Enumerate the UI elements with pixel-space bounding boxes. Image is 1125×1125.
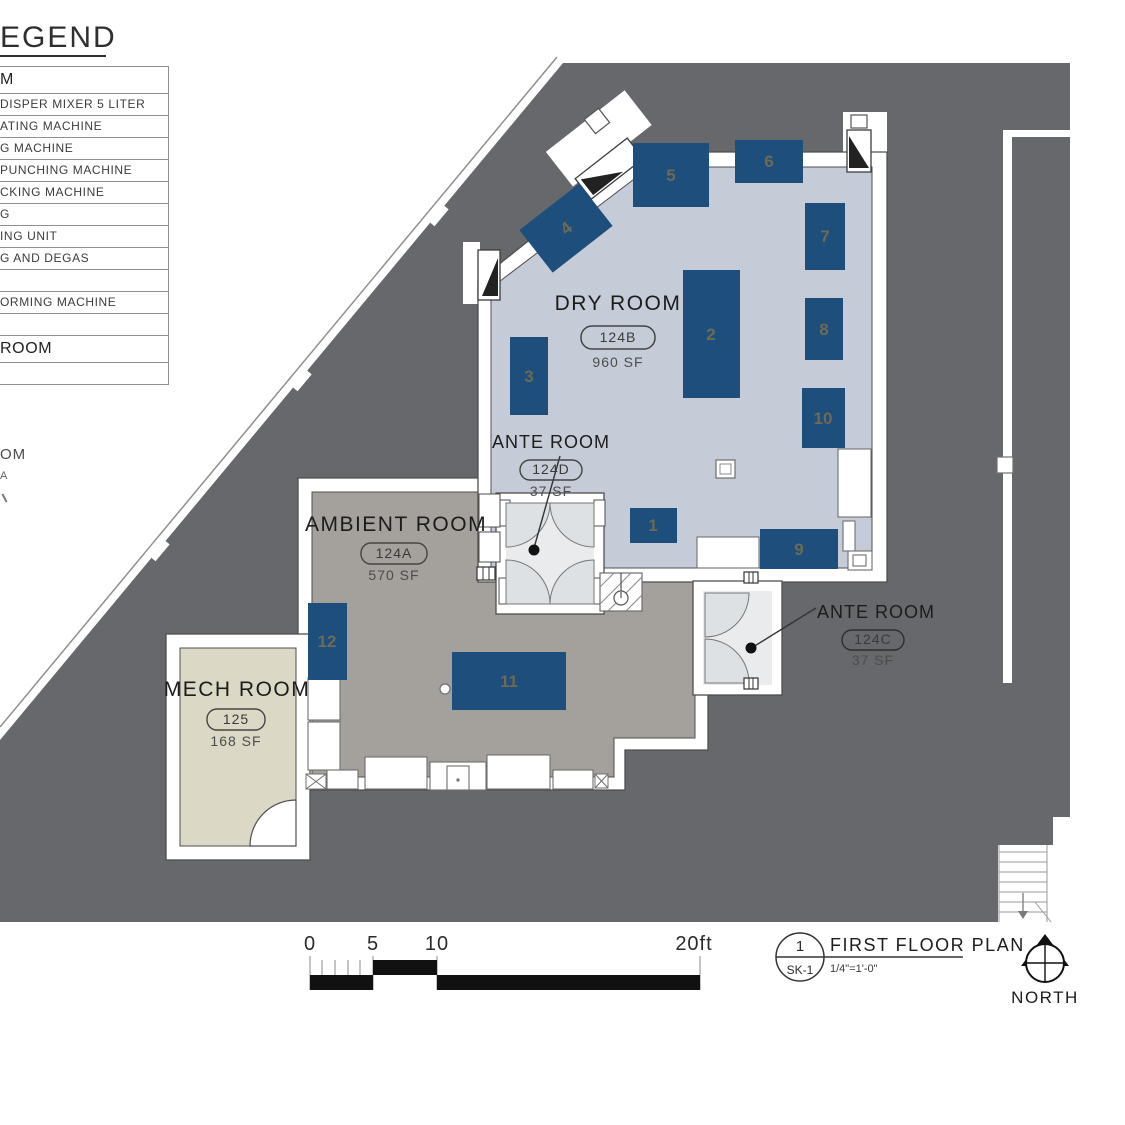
cut-label-fragment: OM [0,446,26,463]
louver-top-right [847,115,871,172]
legend-table: M DISPER MIXER 5 LITER ATING MACHINE G M… [0,66,169,385]
equipment-number: 5 [666,166,675,185]
legend: EGEND M DISPER MIXER 5 LITER ATING MACHI… [0,22,170,385]
room-tag: 124D [532,461,569,477]
equipment-number: 9 [794,540,803,559]
room-tag: 124A [376,545,413,561]
drawing-scale: 1/4"=1'-0" [830,963,878,975]
legend-row: G [0,204,168,226]
louver-left-wall [478,250,500,300]
x-box-fixture [306,774,326,789]
grille-fixture [744,678,758,689]
north-arrow-icon [1021,934,1069,982]
corridor-fixture [997,457,1013,473]
north-label: NORTH [1011,988,1079,1007]
scale-tick-label: 0 [304,933,316,955]
room-name: AMBIENT ROOM [305,513,487,536]
legend-row [0,314,168,336]
equipment-number: 1 [648,516,657,535]
legend-row: ING UNIT [0,226,168,248]
grille-fixture [477,567,495,580]
detail-number: 1 [796,938,804,955]
dry-room-column [716,460,735,478]
room-name: ANTE ROOM [492,432,610,452]
room-tag: 124C [854,631,891,647]
grille-fixture [744,572,758,583]
door-knob-fixture [440,684,450,694]
dry-room-bench [697,537,759,568]
title-block: 1 SK-1 FIRST FLOOR PLAN 1/4"=1'-0" [776,933,1025,981]
legend-row: ATING MACHINE [0,116,168,138]
ante-room-124c-vestibule [693,572,782,695]
corridor-gap-vertical [1003,130,1012,683]
scale-tick-label: 20ft [675,933,712,955]
legend-row: G MACHINE [0,138,168,160]
scale-tick-label: 10 [425,933,449,955]
room-name: DRY ROOM [555,292,682,315]
legend-row: M [0,67,168,94]
room-name: MECH ROOM [164,678,311,701]
equipment-number: 2 [706,325,715,344]
legend-row: PUNCHING MACHINE [0,160,168,182]
legend-row [0,270,168,292]
equipment-number: 3 [524,367,533,386]
stair [998,845,1053,923]
room-area: 168 SF [210,733,261,749]
legend-row: ROOM [0,336,168,363]
equipment-number: 7 [820,227,829,246]
room-area: 37 SF [852,652,894,668]
legend-row: DISPER MIXER 5 LITER [0,94,168,116]
legend-row: G AND DEGAS [0,248,168,270]
legend-row [0,363,168,385]
room-area: 570 SF [368,567,419,583]
room-area: 960 SF [592,354,643,370]
legend-title-underline [0,55,106,57]
legend-title: EGEND [0,22,170,54]
room-area: 37 SF [530,483,572,499]
x-box-fixture [595,774,608,788]
room-name: ANTE ROOM [817,602,935,622]
sheet-number: SK-1 [787,963,814,977]
scale-tick-label: 5 [367,933,379,955]
ante-room-124d-vestibule [496,493,605,614]
legend-row: CKING MACHINE [0,182,168,204]
equipment-number: 11 [500,672,518,691]
corridor-gap-horizontal [1003,130,1070,137]
cut-label-fragment: A [0,470,7,482]
scale-bar: 0 5 10 20ft [304,933,713,990]
floor-drain [600,573,642,611]
equipment-number: 6 [764,152,773,171]
equipment-number: 12 [318,632,337,651]
room-tag: 124B [600,329,637,345]
drawing-title: FIRST FLOOR PLAN [830,935,1025,955]
equipment-number: 8 [819,320,828,339]
equipment-number: 10 [814,409,833,428]
room-tag: 125 [223,711,249,727]
sink-fixture [447,766,469,790]
legend-row: ORMING MACHINE [0,292,168,314]
